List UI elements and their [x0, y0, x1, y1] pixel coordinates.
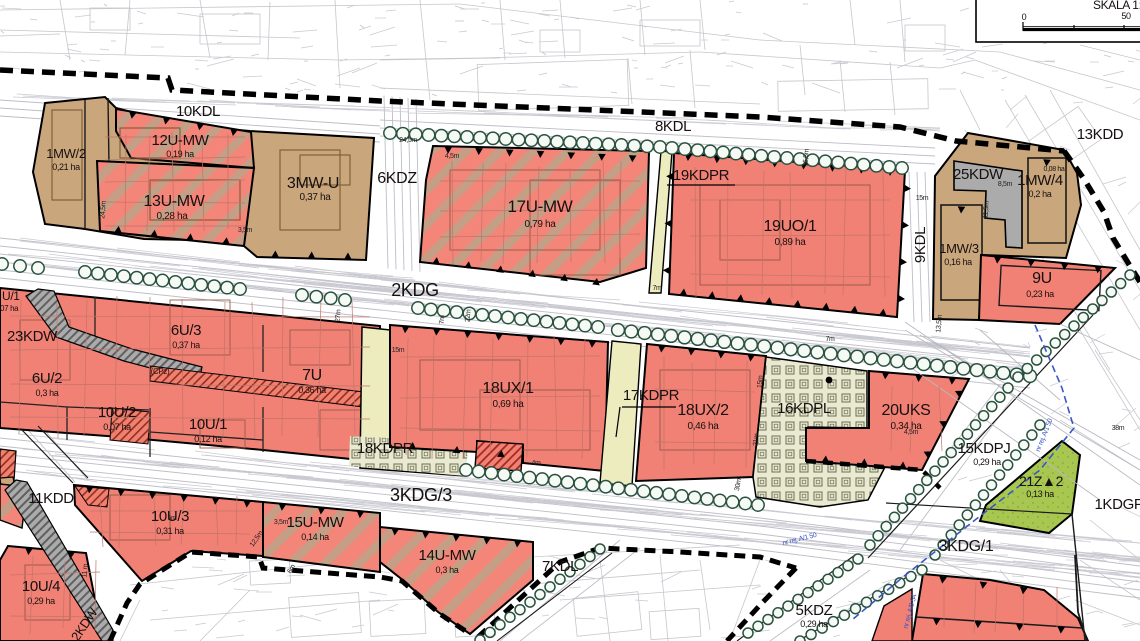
svg-text:0,28 ha: 0,28 ha — [157, 211, 189, 222]
svg-text:22m: 22m — [464, 309, 472, 323]
svg-text:8KDL: 8KDL — [655, 118, 691, 135]
svg-text:U/1: U/1 — [2, 289, 20, 303]
svg-text:18UX/2: 18UX/2 — [677, 402, 729, 419]
svg-text:0: 0 — [1022, 12, 1027, 22]
svg-text:0,13 ha: 0,13 ha — [1026, 489, 1054, 499]
svg-text:15KDPJ: 15KDPJ — [958, 440, 1011, 457]
svg-text:19UO/1: 19UO/1 — [763, 218, 816, 235]
svg-text:0,16 ha: 0,16 ha — [944, 257, 972, 267]
svg-text:14U-MW: 14U-MW — [418, 547, 476, 564]
svg-text:10KDL: 10KDL — [176, 103, 220, 120]
svg-text:8,5m: 8,5m — [998, 181, 1013, 188]
svg-text:15m: 15m — [756, 375, 764, 389]
svg-text:0,36 ha: 0,36 ha — [298, 385, 326, 395]
svg-text:11 m: 11 m — [81, 563, 89, 578]
svg-text:13KDD: 13KDD — [1077, 126, 1124, 143]
svg-text:0,12 ha: 0,12 ha — [194, 434, 222, 444]
svg-text:(CPz): (CPz) — [151, 367, 170, 376]
svg-text:0,21 ha: 0,21 ha — [52, 162, 80, 172]
svg-text:1MW/3: 1MW/3 — [939, 241, 979, 256]
svg-text:0,3 ha: 0,3 ha — [36, 388, 59, 398]
svg-text:6KDZ: 6KDZ — [377, 170, 417, 187]
svg-text:0,3 ha: 0,3 ha — [436, 565, 459, 575]
svg-text:4m: 4m — [531, 460, 541, 467]
svg-text:0,31 ha: 0,31 ha — [156, 526, 184, 536]
svg-text:20UKS: 20UKS — [882, 402, 931, 419]
svg-text:7m: 7m — [439, 315, 447, 325]
svg-text:SKALA 1:1: SKALA 1:1 — [1093, 0, 1140, 12]
svg-text:0,29 ha: 0,29 ha — [800, 619, 828, 629]
svg-text:25KDW: 25KDW — [953, 166, 1004, 183]
svg-text:16KDPL: 16KDPL — [777, 400, 831, 417]
svg-text:18UX/1: 18UX/1 — [482, 380, 534, 397]
svg-text:1MW/4: 1MW/4 — [1017, 172, 1063, 189]
svg-text:17U-MW: 17U-MW — [508, 197, 573, 216]
svg-text:7U: 7U — [302, 367, 322, 384]
svg-text:7m: 7m — [825, 336, 835, 343]
svg-text:0,69 ha: 0,69 ha — [493, 399, 525, 410]
svg-text:12U-MW: 12U-MW — [151, 132, 209, 149]
svg-text:50: 50 — [1121, 11, 1131, 21]
svg-text:3KDG/1: 3KDG/1 — [939, 538, 994, 555]
svg-text:11KDD: 11KDD — [28, 490, 74, 507]
svg-text:9KDL: 9KDL — [912, 227, 929, 263]
svg-text:0,89 ha: 0,89 ha — [775, 237, 807, 248]
svg-text:6U/3: 6U/3 — [171, 322, 201, 339]
svg-text:0,19 ha: 0,19 ha — [166, 149, 194, 159]
svg-text:2KDG: 2KDG — [391, 280, 439, 300]
svg-text:0,37 ha: 0,37 ha — [172, 340, 200, 350]
svg-text:27m: 27m — [334, 309, 342, 323]
svg-text:0,2 ha: 0,2 ha — [1029, 189, 1052, 199]
svg-text:3,5m: 3,5m — [274, 519, 289, 526]
svg-text:0,23 ha: 0,23 ha — [1026, 289, 1054, 299]
svg-text:3MW-U: 3MW-U — [287, 175, 339, 192]
svg-text:21Z▲2: 21Z▲2 — [1019, 473, 1064, 489]
svg-text:18KDPR: 18KDPR — [357, 440, 414, 457]
svg-text:15m: 15m — [392, 347, 405, 354]
svg-text:5m: 5m — [167, 515, 177, 522]
svg-text:5KDZ: 5KDZ — [796, 602, 833, 619]
svg-text:0,29 ha: 0,29 ha — [27, 596, 55, 606]
svg-text:0,37 ha: 0,37 ha — [300, 192, 332, 203]
svg-text:0,08 ha: 0,08 ha — [1044, 166, 1065, 173]
svg-text:10U/4: 10U/4 — [22, 578, 60, 595]
svg-text:4,5m: 4,5m — [904, 429, 919, 436]
svg-text:3,5m: 3,5m — [238, 227, 253, 234]
svg-text:24,5m: 24,5m — [399, 137, 417, 144]
svg-text:07 ha: 07 ha — [0, 304, 19, 313]
svg-text:0,07 ha: 0,07 ha — [103, 422, 131, 432]
svg-text:0,79 ha: 0,79 ha — [525, 219, 557, 230]
svg-text:21m: 21m — [752, 433, 760, 447]
svg-text:23KDW: 23KDW — [7, 328, 58, 345]
svg-text:3KDG/3: 3KDG/3 — [390, 485, 452, 505]
svg-text:0,14 ha: 0,14 ha — [301, 532, 329, 542]
svg-text:1KDGP: 1KDGP — [1094, 496, 1140, 513]
svg-text:0,29 ha: 0,29 ha — [973, 457, 1001, 467]
svg-text:7m: 7m — [652, 285, 662, 292]
svg-text:10U/2: 10U/2 — [98, 404, 136, 421]
svg-text:17KDPR: 17KDPR — [623, 387, 680, 404]
svg-text:13U-MW: 13U-MW — [143, 193, 205, 210]
svg-text:7KDL: 7KDL — [542, 558, 578, 575]
svg-text:9U: 9U — [1032, 270, 1052, 287]
svg-text:0,46 ha: 0,46 ha — [688, 421, 720, 432]
svg-text:6U/2: 6U/2 — [32, 370, 62, 387]
svg-text:15U-MW: 15U-MW — [286, 514, 344, 531]
svg-text:4,5m: 4,5m — [445, 153, 460, 160]
svg-text:19KDPR: 19KDPR — [673, 167, 730, 184]
svg-text:15m: 15m — [916, 195, 929, 202]
svg-text:10U/1: 10U/1 — [189, 416, 227, 433]
svg-text:38m: 38m — [1112, 425, 1125, 432]
svg-text:1MW/2: 1MW/2 — [46, 146, 86, 161]
